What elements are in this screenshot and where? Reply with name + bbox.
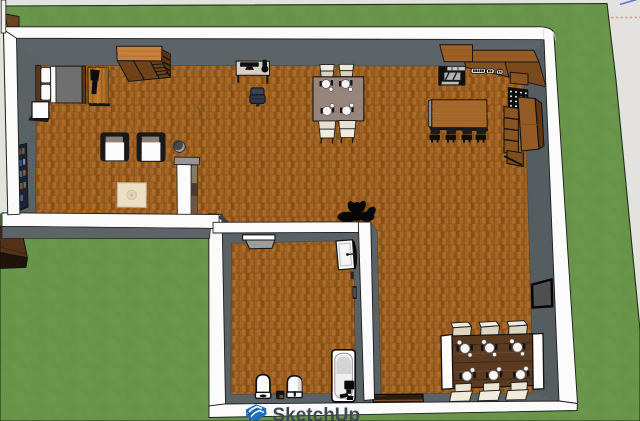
svg-text:SketchUp: SketchUp <box>273 405 361 421</box>
